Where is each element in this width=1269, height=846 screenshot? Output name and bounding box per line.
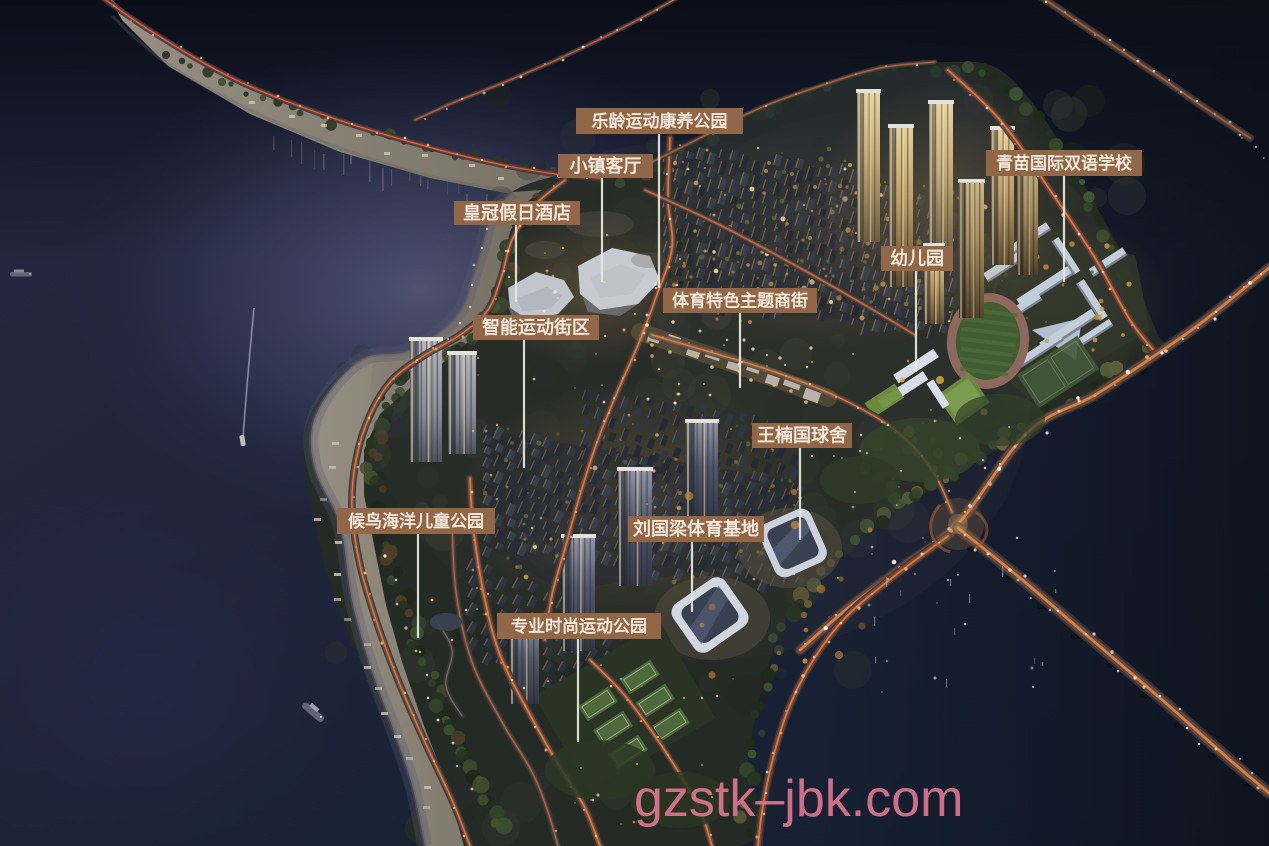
svg-text:幼儿园: 幼儿园	[890, 248, 944, 269]
svg-text:gzstk–jbk.com: gzstk–jbk.com	[634, 770, 963, 828]
svg-text:候鸟海洋儿童公园: 候鸟海洋儿童公园	[348, 511, 484, 531]
svg-text:皇冠假日酒店: 皇冠假日酒店	[463, 202, 571, 223]
svg-text:王楠国球舍: 王楠国球舍	[757, 425, 848, 446]
svg-text:小镇客厅: 小镇客厅	[570, 155, 642, 176]
svg-text:青苗国际双语学校: 青苗国际双语学校	[996, 153, 1133, 173]
svg-text:专业时尚运动公园: 专业时尚运动公园	[511, 616, 647, 636]
svg-text:体育特色主题商街: 体育特色主题商街	[672, 291, 808, 311]
svg-text:智能运动街区: 智能运动街区	[482, 317, 590, 338]
svg-text:刘国梁体育基地: 刘国梁体育基地	[633, 518, 759, 539]
svg-text:乐龄运动康养公园: 乐龄运动康养公园	[592, 111, 728, 131]
